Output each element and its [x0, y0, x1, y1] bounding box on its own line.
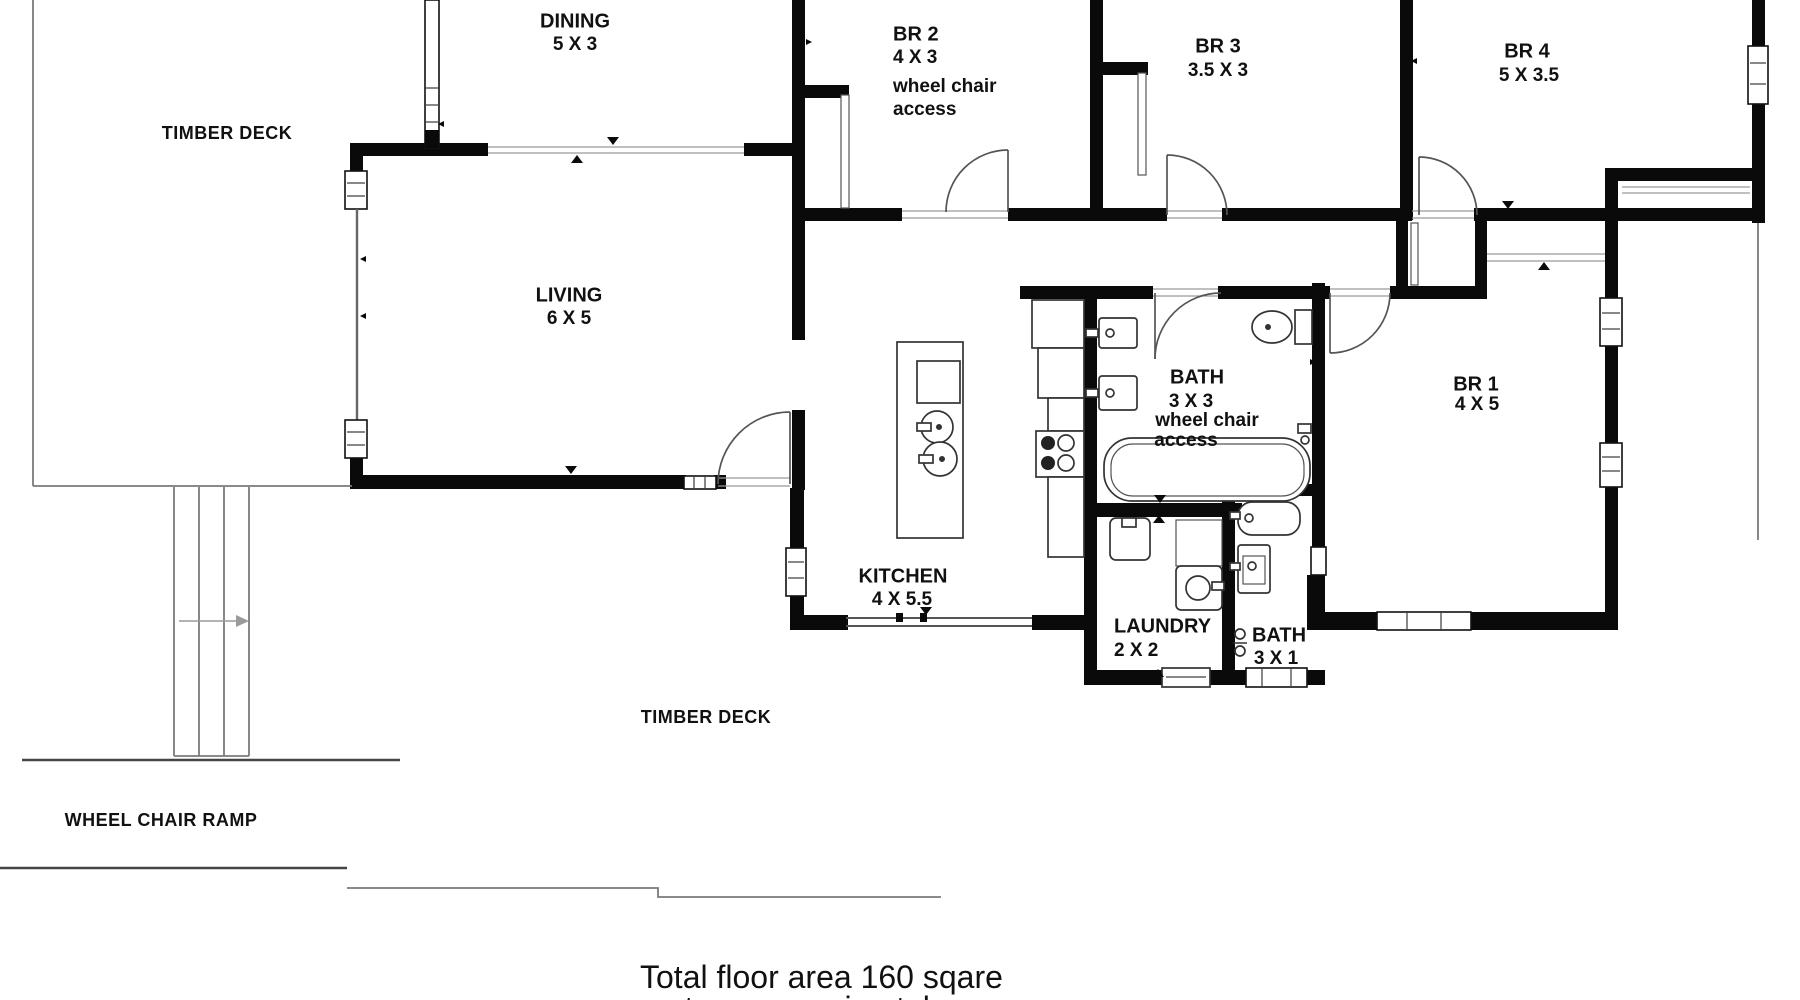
- room-label-br1: BR 1: [1453, 373, 1499, 395]
- wall: [350, 475, 686, 489]
- wall: [1474, 208, 1765, 221]
- island-sink: [917, 361, 960, 403]
- ramp-label: WHEEL CHAIR RAMP: [65, 810, 258, 830]
- washing-machine: [1176, 566, 1224, 610]
- laundry-cabinet: [1176, 520, 1222, 566]
- wall: [792, 0, 805, 340]
- room-label-bath-main: BATH: [1170, 366, 1224, 388]
- window: [1311, 547, 1326, 575]
- wall: [790, 596, 804, 618]
- shower-taps: [1233, 629, 1247, 656]
- window: [1748, 46, 1768, 104]
- floor-plan: TIMBER DECK DINING 5 X 3 BR 2 4 X 3 whee…: [0, 0, 1800, 1000]
- closet-door-track: [1411, 223, 1418, 285]
- window-mullion: [896, 613, 903, 622]
- wall: [792, 410, 805, 490]
- window: [345, 420, 367, 458]
- wall: [1312, 483, 1325, 547]
- window: [684, 476, 716, 489]
- wall: [1752, 104, 1765, 223]
- wall: [1605, 168, 1618, 223]
- room-label-br3: BR 3: [1195, 35, 1241, 57]
- small-bath-vanity: [1230, 545, 1270, 593]
- wall: [790, 488, 804, 550]
- wall: [1210, 670, 1246, 685]
- room-dims-br2: 4 X 3: [893, 47, 937, 68]
- wall: [1008, 208, 1167, 221]
- window: [1377, 612, 1471, 630]
- laundry-tub: [1110, 518, 1150, 560]
- room-note-bath-main-2: access: [1154, 430, 1217, 451]
- room-label-kitchen: KITCHEN: [859, 565, 948, 587]
- wheelchair-ramp: [174, 487, 249, 756]
- labels: TIMBER DECK DINING 5 X 3 BR 2 4 X 3 whee…: [65, 10, 1560, 1000]
- room-label-br4: BR 4: [1504, 40, 1550, 62]
- wall: [350, 143, 488, 156]
- kitchen-bench: [1032, 300, 1084, 557]
- small-bath-toilet: [1230, 502, 1300, 535]
- wall: [1396, 221, 1408, 286]
- wall: [1032, 615, 1084, 630]
- wall: [1307, 575, 1325, 615]
- room-label-dining: DINING: [540, 10, 610, 32]
- closet-door-track: [841, 95, 849, 208]
- room-note-br2-1: wheel chair: [892, 76, 997, 97]
- wall: [1475, 221, 1487, 286]
- deck-edge: [347, 888, 941, 897]
- room-dims-dining: 5 X 3: [553, 34, 597, 55]
- wall: [350, 143, 363, 173]
- room-note-br2-2: access: [893, 99, 956, 120]
- room-dims-br1: 4 X 5: [1455, 394, 1500, 415]
- window: [1600, 298, 1622, 346]
- wall: [1605, 223, 1618, 300]
- wall: [1084, 286, 1097, 685]
- room-dims-living: 6 X 5: [547, 308, 592, 329]
- room-dims-br4: 5 X 3.5: [1499, 65, 1560, 86]
- wall: [425, 130, 439, 148]
- room-dims-laundry: 2 X 2: [1114, 640, 1158, 661]
- wall: [1312, 283, 1325, 483]
- room-label-bath-small: BATH: [1252, 624, 1306, 646]
- toilet: [1252, 310, 1312, 344]
- kitchen-island: [897, 342, 963, 538]
- wall: [1605, 346, 1618, 445]
- wall: [1400, 0, 1413, 220]
- room-dims-bath-small: 3 X 1: [1254, 648, 1299, 669]
- wall: [1306, 670, 1325, 685]
- room-dims-br3: 3.5 X 3: [1188, 60, 1248, 81]
- deck-bottom-label: TIMBER DECK: [641, 707, 772, 727]
- wall: [790, 615, 848, 630]
- room-note-bath-main-1: wheel chair: [1154, 410, 1259, 431]
- room-label-br2: BR 2: [893, 23, 939, 45]
- room-dims-kitchen: 4 X 5.5: [872, 589, 933, 610]
- wall: [1752, 0, 1765, 46]
- window: [786, 548, 806, 596]
- window: [1600, 443, 1622, 487]
- wall: [1390, 286, 1487, 299]
- doors: [488, 147, 1477, 687]
- wall: [1307, 612, 1377, 630]
- wall: [1605, 168, 1765, 181]
- room-dims-bath-main: 3 X 3: [1169, 391, 1213, 412]
- window: [1246, 668, 1307, 687]
- wall: [1090, 0, 1103, 220]
- fixtures: [897, 300, 1312, 656]
- window: [345, 171, 367, 209]
- window: [425, 0, 439, 148]
- wall: [1222, 208, 1412, 221]
- room-label-living: LIVING: [536, 284, 603, 306]
- wall: [1084, 670, 1162, 685]
- room-label-laundry: LAUNDRY: [1114, 615, 1212, 637]
- closet-door-track: [1138, 73, 1146, 175]
- wall: [1471, 612, 1618, 630]
- wall: [1605, 487, 1618, 617]
- deck-top-label: TIMBER DECK: [162, 123, 293, 143]
- footer-area-line2: metres approximately: [640, 990, 946, 1000]
- wall: [1084, 503, 1242, 517]
- wall: [792, 208, 902, 221]
